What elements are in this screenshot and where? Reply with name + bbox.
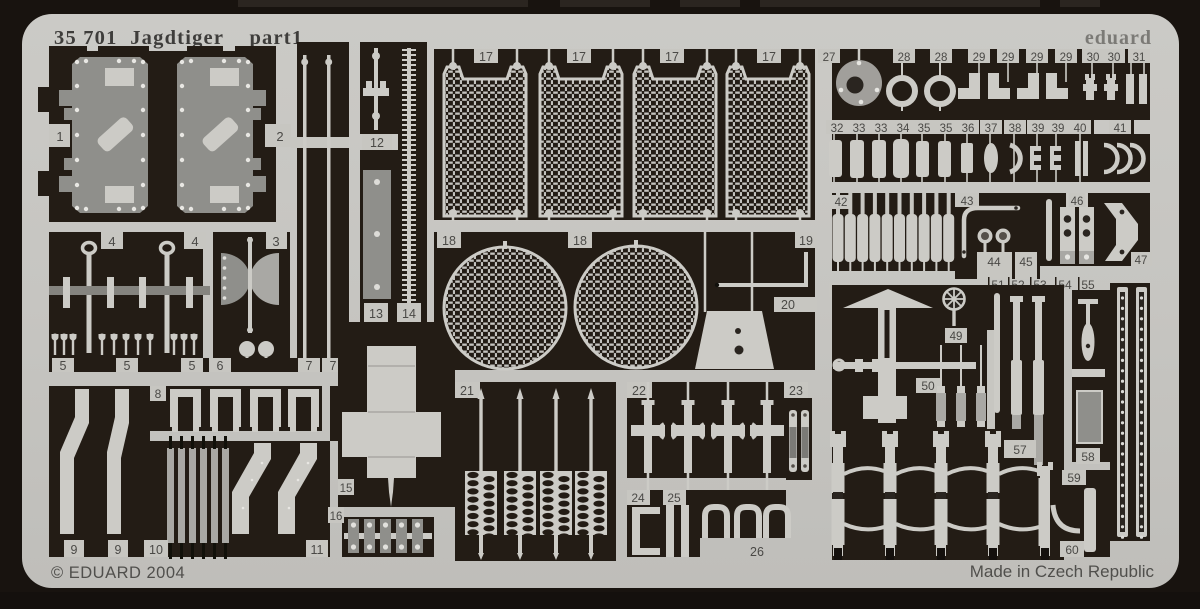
svg-text:20: 20: [781, 298, 795, 312]
svg-text:22: 22: [632, 384, 646, 398]
svg-text:2: 2: [276, 129, 283, 144]
svg-text:17: 17: [572, 50, 586, 64]
svg-text:15: 15: [340, 483, 353, 495]
svg-text:34: 34: [897, 123, 910, 135]
svg-text:43: 43: [961, 196, 974, 208]
svg-text:5: 5: [60, 359, 67, 373]
svg-text:9: 9: [115, 543, 122, 557]
svg-text:10: 10: [149, 543, 163, 557]
svg-text:60: 60: [1065, 543, 1079, 557]
svg-text:38: 38: [1009, 123, 1022, 135]
svg-text:14: 14: [402, 307, 416, 321]
svg-text:13: 13: [369, 307, 383, 321]
svg-text:18: 18: [573, 234, 587, 248]
svg-text:17: 17: [762, 50, 776, 64]
svg-text:27: 27: [823, 52, 836, 64]
svg-text:23: 23: [789, 384, 803, 398]
svg-text:57: 57: [1013, 443, 1027, 457]
svg-text:21: 21: [460, 384, 474, 398]
svg-text:7: 7: [330, 359, 337, 373]
svg-text:16: 16: [330, 511, 343, 523]
svg-text:33: 33: [875, 123, 888, 135]
svg-text:17: 17: [665, 50, 679, 64]
svg-text:18: 18: [442, 234, 456, 248]
svg-text:36: 36: [962, 123, 975, 135]
svg-text:46: 46: [1071, 196, 1084, 208]
svg-text:42: 42: [835, 197, 848, 209]
svg-text:41: 41: [1114, 123, 1127, 135]
svg-text:35 701 Jagdtiger part1: 35 701 Jagdtiger part1: [54, 27, 303, 49]
svg-text:12: 12: [370, 136, 384, 150]
svg-text:29: 29: [1060, 52, 1073, 64]
svg-text:33: 33: [853, 123, 866, 135]
svg-text:32: 32: [831, 123, 844, 135]
svg-text:30: 30: [1087, 52, 1100, 64]
svg-text:49: 49: [950, 331, 963, 343]
svg-text:29: 29: [973, 52, 986, 64]
svg-text:45: 45: [1019, 255, 1033, 269]
svg-text:35: 35: [940, 123, 953, 135]
svg-text:eduard: eduard: [1085, 27, 1152, 49]
svg-text:58: 58: [1081, 450, 1095, 464]
svg-text:59: 59: [1067, 471, 1081, 485]
svg-text:37: 37: [985, 123, 998, 135]
svg-text:35: 35: [918, 123, 931, 135]
svg-text:30: 30: [1108, 52, 1121, 64]
svg-text:29: 29: [1002, 52, 1015, 64]
svg-text:11: 11: [311, 543, 324, 557]
svg-text:6: 6: [217, 359, 224, 373]
svg-text:39: 39: [1032, 123, 1045, 135]
svg-text:3: 3: [272, 234, 279, 249]
svg-text:25: 25: [667, 491, 681, 505]
svg-text:47: 47: [1135, 255, 1148, 267]
svg-text:31: 31: [1133, 52, 1146, 64]
svg-text:55: 55: [1081, 278, 1095, 292]
svg-text:17: 17: [479, 50, 493, 64]
svg-text:7: 7: [306, 359, 313, 373]
svg-text:5: 5: [124, 359, 131, 373]
svg-text:4: 4: [108, 234, 115, 249]
svg-text:40: 40: [1074, 123, 1087, 135]
svg-text:© EDUARD 2004: © EDUARD 2004: [51, 564, 185, 582]
svg-text:29: 29: [1031, 52, 1044, 64]
svg-text:5: 5: [189, 359, 196, 373]
svg-text:19: 19: [799, 234, 813, 248]
svg-text:39: 39: [1052, 123, 1065, 135]
svg-text:24: 24: [631, 491, 645, 505]
svg-text:Made in Czech Republic: Made in Czech Republic: [970, 562, 1155, 581]
svg-text:28: 28: [898, 52, 911, 64]
svg-text:4: 4: [191, 234, 198, 249]
svg-text:44: 44: [987, 255, 1001, 269]
svg-text:26: 26: [750, 545, 764, 559]
svg-text:28: 28: [935, 52, 948, 64]
svg-text:9: 9: [71, 543, 78, 557]
svg-text:1: 1: [56, 129, 63, 144]
svg-text:8: 8: [155, 387, 162, 401]
svg-text:50: 50: [921, 379, 935, 393]
